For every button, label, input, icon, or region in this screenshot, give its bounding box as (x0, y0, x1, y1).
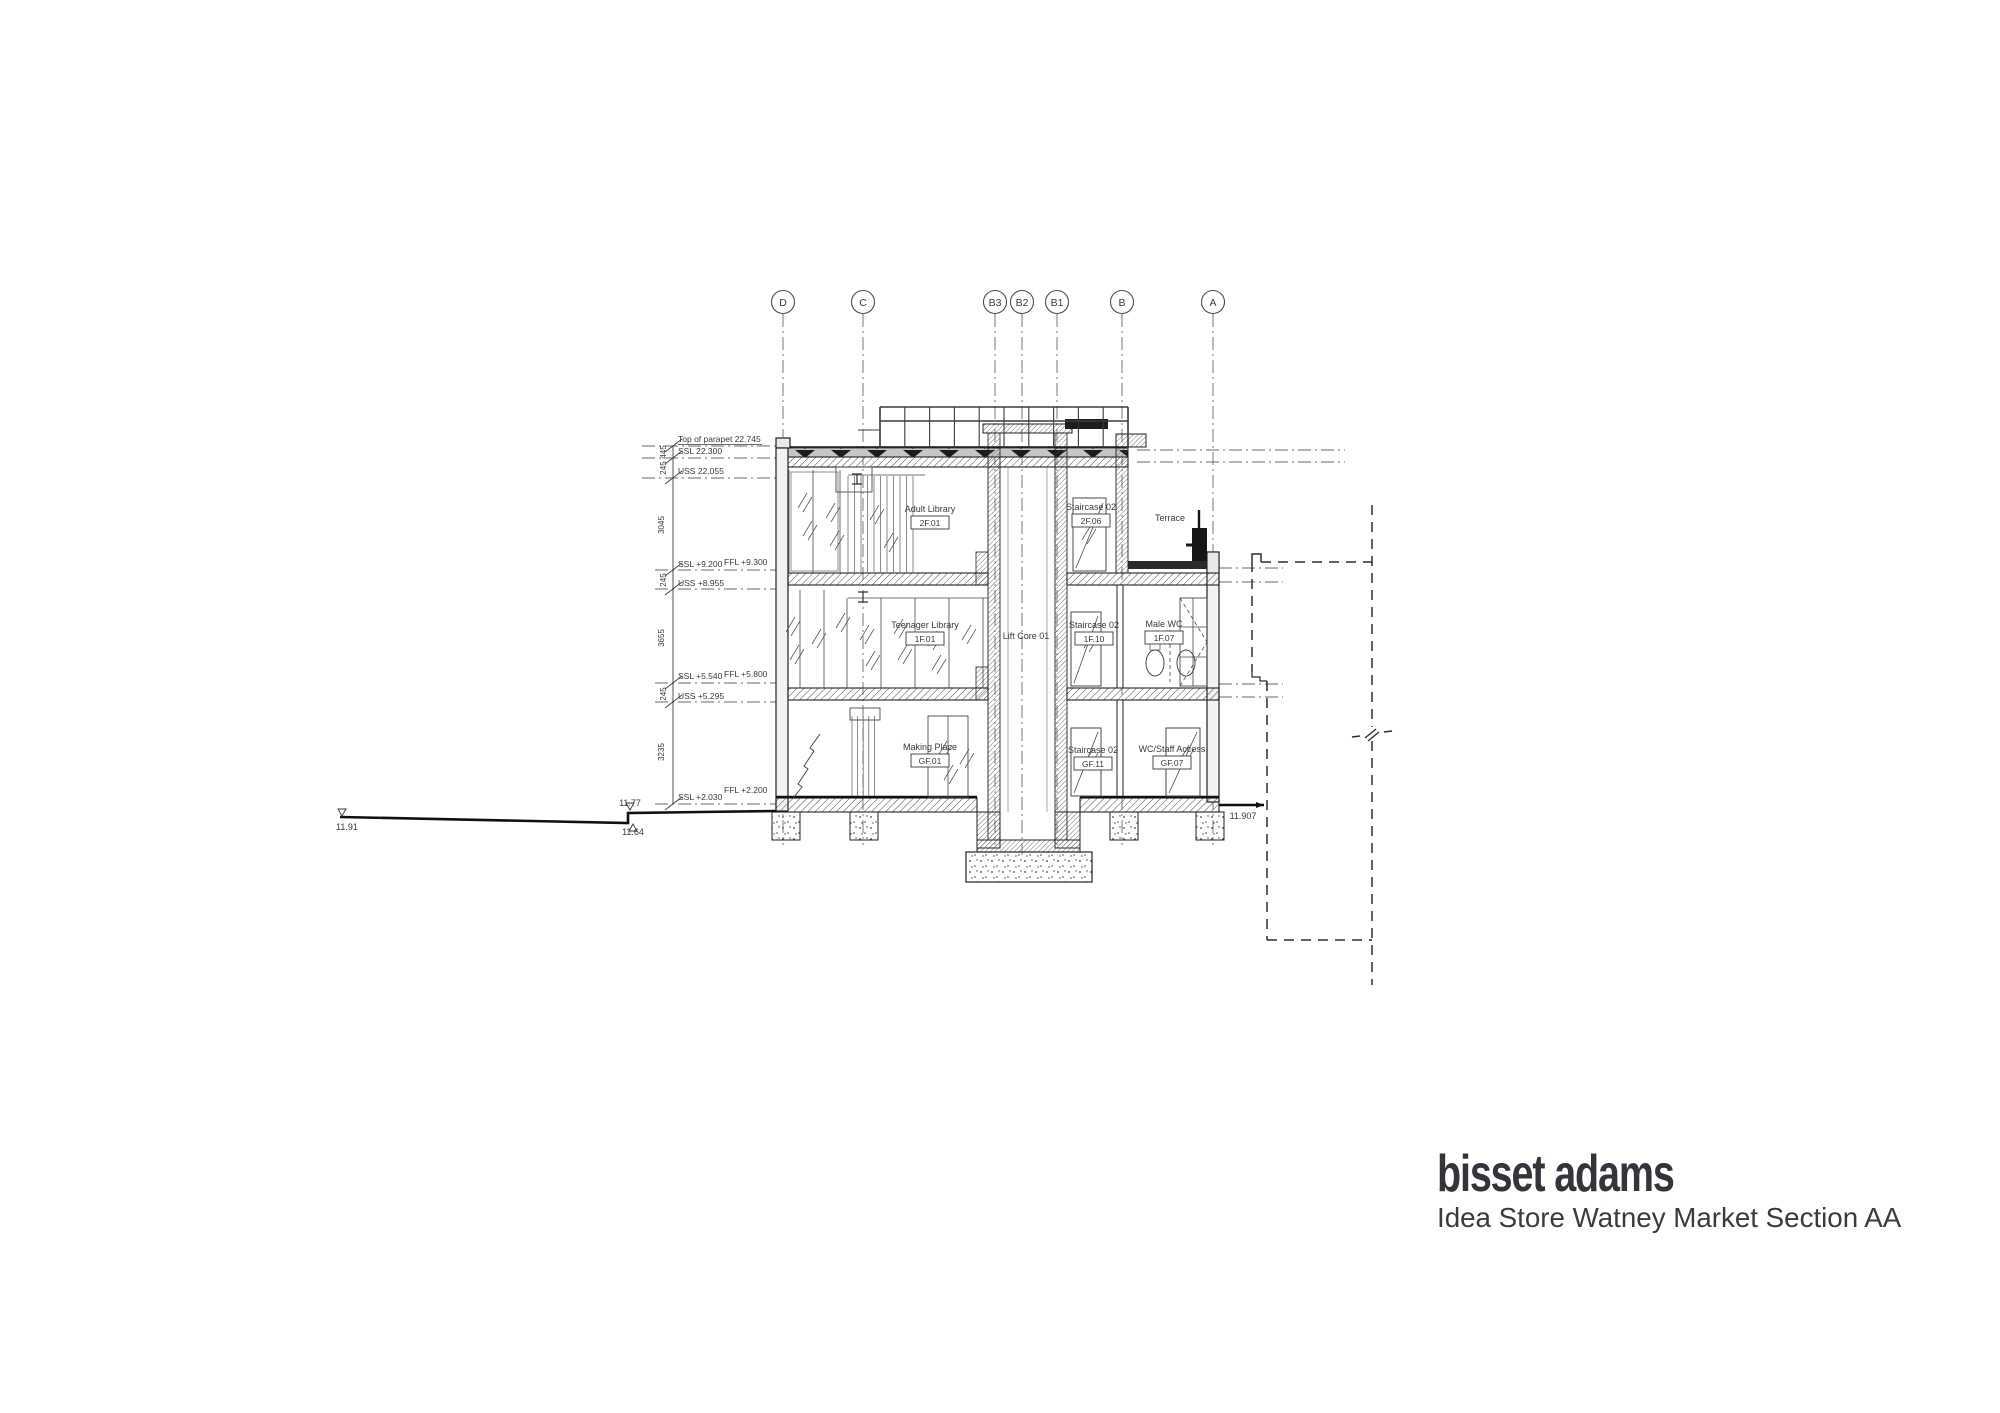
dimension-text: 445 (659, 445, 668, 459)
grid-bubble-label: C (859, 297, 867, 309)
dimension-text: 245 (659, 573, 668, 587)
level-annotation: Top of parapet 22.745 (678, 434, 761, 444)
room-tag: 1F.01 (915, 634, 936, 644)
grid-bubble-label: B2 (1016, 297, 1029, 309)
level-annotation: SSL +5.540 (678, 671, 723, 681)
drawing-sheet: DCB3B2B1BA Top of parapet 22.745SSL 22.3… (0, 0, 2000, 1413)
left-external-wall (776, 448, 788, 811)
dimension-text: 3235 (657, 743, 666, 761)
glass-tick (836, 613, 850, 632)
grid-bubble-label: B (1118, 297, 1125, 309)
level-annotations: Top of parapet 22.745SSL 22.300USS 22.05… (678, 434, 768, 802)
glass-tick (830, 531, 844, 550)
second-floor-slab (788, 573, 1219, 585)
glass-tick (1082, 525, 1096, 544)
room-name: Male WC (1145, 619, 1183, 629)
room-tag: 2F.06 (1081, 516, 1102, 526)
lift-core-walls (976, 448, 1067, 840)
room-name: Staircase 02 (1066, 502, 1116, 512)
dimension-text: 3045 (657, 516, 666, 534)
dimension-chain (665, 439, 682, 810)
partition-wall-1f (1117, 585, 1123, 688)
adjacent-structure-outline (1252, 505, 1392, 985)
glass-tick (798, 493, 812, 512)
steel-beam-symbol (852, 474, 862, 484)
glass-tick (962, 625, 976, 644)
glass-tick (884, 533, 898, 552)
room-name: Staircase 02 (1069, 620, 1119, 630)
dimension-texts: 445245304524536552453235 (657, 445, 668, 761)
room-name: Adult Library (905, 504, 956, 514)
level-annotation: USS 22.055 (678, 466, 724, 476)
room-tag: GF.01 (919, 756, 942, 766)
roof-slab (776, 447, 1128, 467)
dimension-text: 245 (659, 687, 668, 701)
glass-tick (860, 625, 874, 644)
first-floor-slab (788, 688, 1219, 700)
room-name: WC/Staff Access (1139, 744, 1206, 754)
room-tag: 1F.07 (1154, 633, 1175, 643)
glass-tick (870, 505, 884, 524)
roof-kerb (1116, 434, 1146, 447)
spot-level: 11.91 (336, 822, 358, 832)
room-tag: GF.07 (1161, 758, 1184, 768)
pit-foundation (966, 852, 1092, 882)
glass-tick (898, 645, 912, 664)
drawing-title: Idea Store Watney Market Section AA (1437, 1203, 1901, 1234)
grid-bubble-label: B3 (989, 297, 1002, 309)
glass-tick (932, 655, 946, 674)
firm-logo-text: bisset adams (1437, 1148, 1793, 1200)
room-name: Lift Core 01 (1003, 631, 1050, 641)
grid-b-wall-2f (1116, 448, 1128, 573)
level-annotation: FFL +5.800 (724, 669, 768, 679)
room-name: Staircase 02 (1068, 745, 1118, 755)
glass-tick (960, 749, 974, 768)
level-annotation: FFL +9.300 (724, 557, 768, 567)
level-annotation: SSL 22.300 (678, 446, 722, 456)
lift-pit (966, 812, 1092, 882)
left-parapet (776, 438, 790, 448)
room-labels: Adult Library2F.01Staircase 022F.06Terra… (891, 502, 1206, 770)
grid-bubble-label: A (1209, 297, 1216, 309)
glass-tick (803, 521, 817, 540)
spot-level: 11.77 (619, 798, 641, 808)
title-block: bisset adams Idea Store Watney Market Se… (1437, 1148, 1906, 1234)
right-external-wall (1207, 552, 1219, 802)
spot-level: 11.64 (622, 827, 644, 837)
terrace-equipment (1192, 528, 1207, 561)
room-name: Terrace (1155, 513, 1185, 523)
grid-bubble-label: D (779, 297, 787, 309)
room-tag: GF.11 (1082, 759, 1104, 769)
glass-tick (944, 765, 958, 784)
dimension-text: 245 (659, 461, 668, 475)
level-annotation: USS +8.955 (678, 578, 724, 588)
grid-bubble-label: B1 (1051, 297, 1064, 309)
steel-beam-symbol (858, 592, 868, 602)
level-annotation: SSL +2.030 (678, 792, 723, 802)
spot-level: 11.907 (1230, 811, 1257, 821)
level-annotation: SSL +9.200 (678, 559, 723, 569)
level-annotation: FFL +2.200 (724, 785, 768, 795)
room-tag: 2F.01 (920, 518, 941, 528)
room-name: Teenager Library (891, 620, 959, 630)
room-tag: 1F.10 (1084, 634, 1105, 644)
glass-tick (790, 645, 804, 664)
grid-bubbles: DCB3B2B1BA (772, 291, 1225, 317)
dimension-text: 3655 (657, 629, 666, 647)
glass-tick (866, 651, 880, 670)
lift-overrun (983, 424, 1072, 448)
level-annotation: USS +5.295 (678, 691, 724, 701)
room-name: Making Place (903, 742, 957, 752)
